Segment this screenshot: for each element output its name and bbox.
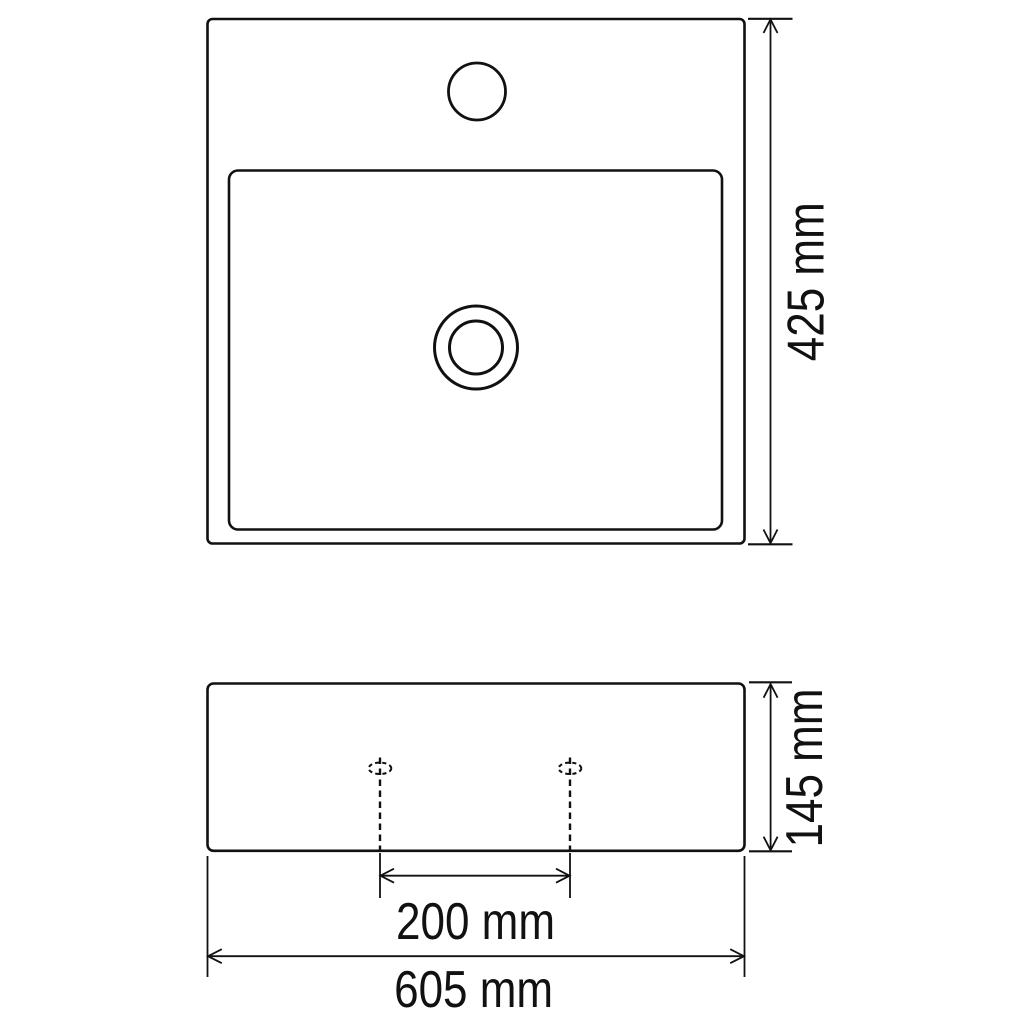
svg-text:425 mm: 425 mm [777, 202, 835, 361]
svg-text:200 mm: 200 mm [396, 892, 555, 950]
svg-text:605 mm: 605 mm [394, 960, 553, 1018]
svg-text:145 mm: 145 mm [775, 689, 833, 848]
